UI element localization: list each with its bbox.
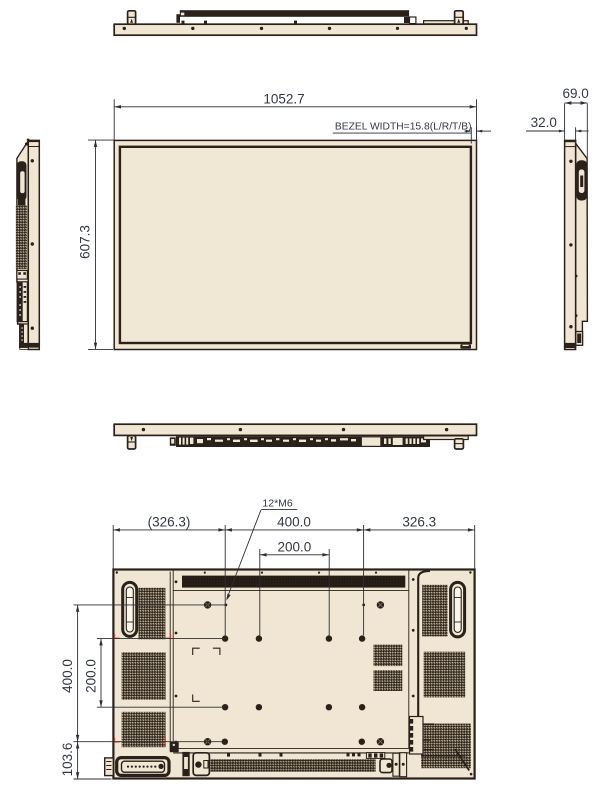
svg-text:(326.3): (326.3) — [148, 514, 191, 529]
svg-text:BEZEL WIDTH=15.8(L/R/T/B): BEZEL WIDTH=15.8(L/R/T/B) — [335, 122, 472, 133]
svg-text:32.0: 32.0 — [531, 115, 557, 130]
svg-text:400.0: 400.0 — [60, 659, 75, 693]
svg-text:200.0: 200.0 — [83, 659, 98, 693]
svg-text:12*M6: 12*M6 — [262, 497, 293, 509]
svg-text:607.3: 607.3 — [78, 225, 93, 259]
svg-text:326.3: 326.3 — [402, 514, 436, 529]
svg-text:103.6: 103.6 — [60, 743, 75, 777]
svg-text:400.0: 400.0 — [277, 514, 311, 529]
svg-text:69.0: 69.0 — [562, 86, 588, 101]
svg-text:200.0: 200.0 — [278, 539, 312, 554]
svg-text:1052.7: 1052.7 — [263, 91, 304, 106]
